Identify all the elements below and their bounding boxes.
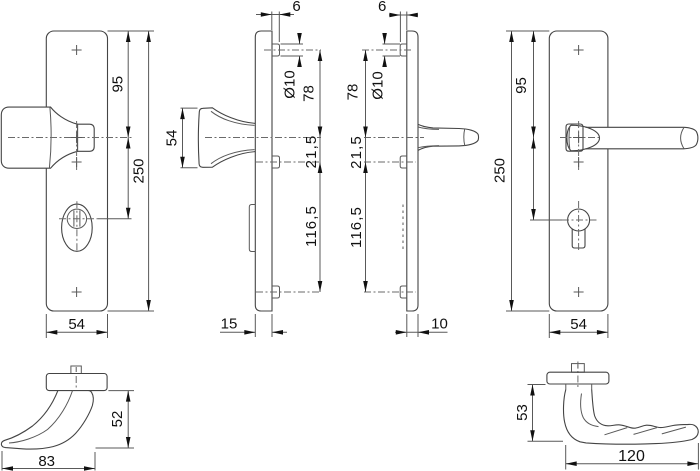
svg-text:Ø10: Ø10 — [369, 71, 386, 99]
svg-text:250: 250 — [131, 158, 148, 183]
svg-text:6: 6 — [378, 0, 386, 15]
svg-text:15: 15 — [221, 316, 238, 333]
svg-text:95: 95 — [110, 76, 127, 93]
svg-text:83: 83 — [38, 453, 55, 470]
svg-text:95: 95 — [513, 77, 530, 94]
svg-text:54: 54 — [570, 316, 587, 333]
svg-text:6: 6 — [292, 0, 300, 15]
svg-text:116,5: 116,5 — [348, 206, 365, 248]
svg-text:21,5: 21,5 — [348, 135, 365, 169]
svg-text:78: 78 — [301, 85, 318, 102]
svg-text:120: 120 — [618, 448, 645, 465]
svg-text:Ø10: Ø10 — [282, 70, 299, 98]
svg-text:78: 78 — [345, 84, 362, 101]
svg-text:10: 10 — [431, 316, 448, 333]
svg-text:53: 53 — [514, 404, 531, 421]
svg-text:116,5: 116,5 — [303, 205, 320, 247]
svg-text:54: 54 — [164, 130, 181, 147]
svg-text:21,5: 21,5 — [303, 135, 320, 169]
svg-text:250: 250 — [492, 158, 509, 183]
svg-text:52: 52 — [109, 411, 126, 428]
svg-text:54: 54 — [68, 316, 85, 333]
